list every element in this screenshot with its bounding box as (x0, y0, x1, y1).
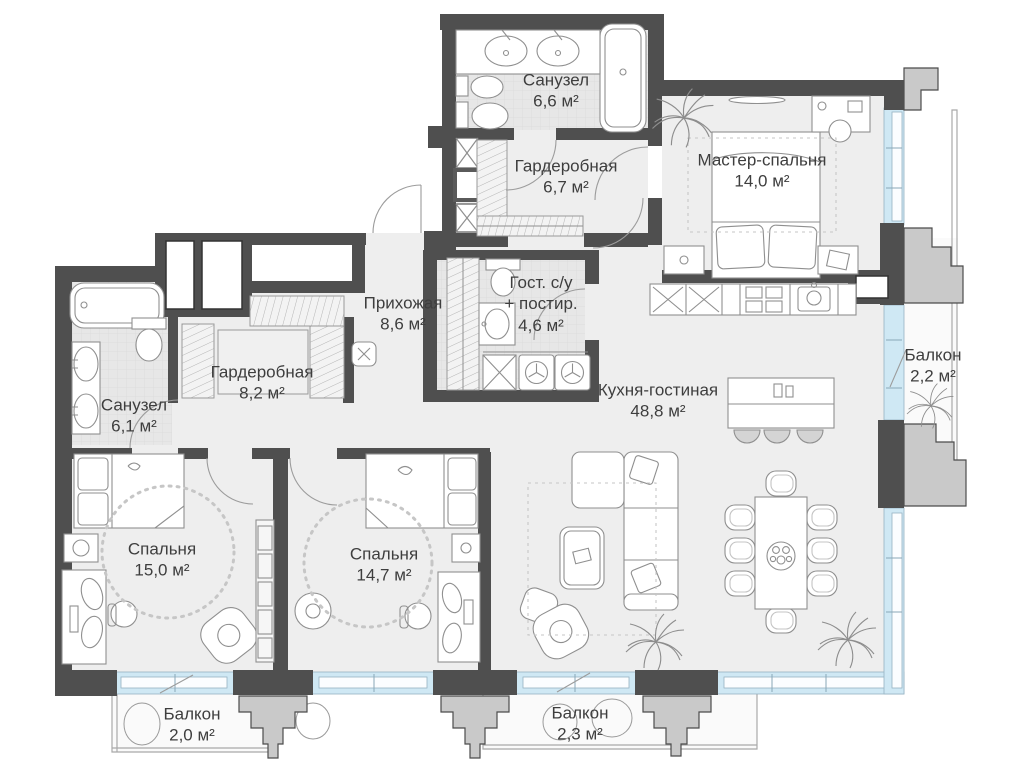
bidet (456, 76, 503, 98)
room-label-sanuzel-top: Санузел 6,6 м² (523, 70, 589, 113)
room-area: 2,2 м² (904, 366, 961, 387)
toilet (456, 102, 508, 129)
room-name: Санузел (523, 70, 589, 91)
coffee-table (560, 527, 604, 589)
room-label-garderobnaya-top: Гардеробная 6,7 м² (515, 156, 618, 199)
room-name: Спальня (128, 539, 196, 560)
room-area: 6,7 м² (515, 177, 618, 198)
room-name: Балкон (163, 704, 220, 725)
room-name: Балкон (904, 345, 961, 366)
room-name: Санузел (101, 395, 167, 416)
room-name: Прихожая (364, 293, 443, 314)
bed-1 (74, 454, 184, 528)
nightstand-2 (452, 534, 480, 562)
room-area: 8,6 м² (364, 314, 443, 335)
room-name: Кухня-гостиная (598, 380, 718, 401)
entrance-door (373, 185, 421, 233)
room-label-master-bedroom: Мастер-спальня 14,0 м² (697, 150, 826, 193)
room-name: Спальня (350, 544, 418, 565)
room-area: 2,0 м² (163, 725, 220, 746)
floor-plan-page: Санузел 6,6 м² Гардеробная 6,7 м² Мастер… (0, 0, 1016, 768)
room-name: Гардеробная (211, 362, 314, 383)
room-name: Гост. с/у (504, 272, 577, 293)
floor-plan-drawing (0, 0, 1016, 768)
room-label-balcony-bottom-left: Балкон 2,0 м² (163, 704, 220, 747)
room-area: 8,2 м² (211, 383, 314, 404)
room-name-2: + постир. (504, 293, 577, 314)
shelf (64, 534, 98, 562)
room-label-bedroom-2: Спальня 14,7 м² (350, 544, 418, 587)
room-name: Гардеробная (515, 156, 618, 177)
desk-2 (438, 572, 480, 662)
washing-machine (519, 355, 554, 390)
kitchen-counter (650, 283, 856, 316)
kitchen-island (728, 378, 834, 443)
bed-2 (366, 454, 478, 528)
room-name: Балкон (551, 703, 608, 724)
room-area: 2,3 м² (551, 724, 608, 745)
room-area: 14,7 м² (350, 565, 418, 586)
bench (352, 342, 376, 366)
room-label-bedroom-1: Спальня 15,0 м² (128, 539, 196, 582)
desk-1 (62, 570, 106, 664)
bathtub (600, 24, 646, 132)
room-label-sanuzel-left: Санузел 6,1 м² (101, 395, 167, 438)
room-label-prihozhaya: Прихожая 8,6 м² (364, 293, 443, 336)
dryer-machine (555, 355, 590, 390)
room-area: 4,6 м² (504, 315, 577, 336)
room-area: 14,0 м² (697, 171, 826, 192)
nightstand (818, 246, 858, 274)
ceiling-light (729, 97, 785, 104)
room-area: 6,6 м² (523, 91, 589, 112)
room-label-garderobnaya-left: Гардеробная 8,2 м² (211, 362, 314, 405)
room-area: 15,0 м² (128, 560, 196, 581)
room-label-guest-su: Гост. с/у + постир. 4,6 м² (504, 272, 577, 336)
room-area: 6,1 м² (101, 416, 167, 437)
cabinet (483, 355, 516, 390)
room-label-kitchen-living: Кухня-гостиная 48,8 м² (598, 380, 718, 423)
room-label-balcony-bottom-center: Балкон 2,3 м² (551, 703, 608, 746)
nightstand (664, 246, 704, 274)
room-name: Мастер-спальня (697, 150, 826, 171)
sink (72, 342, 100, 434)
room-label-balcony-right: Балкон 2,2 м² (904, 345, 961, 388)
closet-1 (256, 520, 274, 662)
duct-boxes (455, 138, 479, 232)
double-sink-vanity (456, 30, 600, 74)
room-area: 48,8 м² (598, 401, 718, 422)
